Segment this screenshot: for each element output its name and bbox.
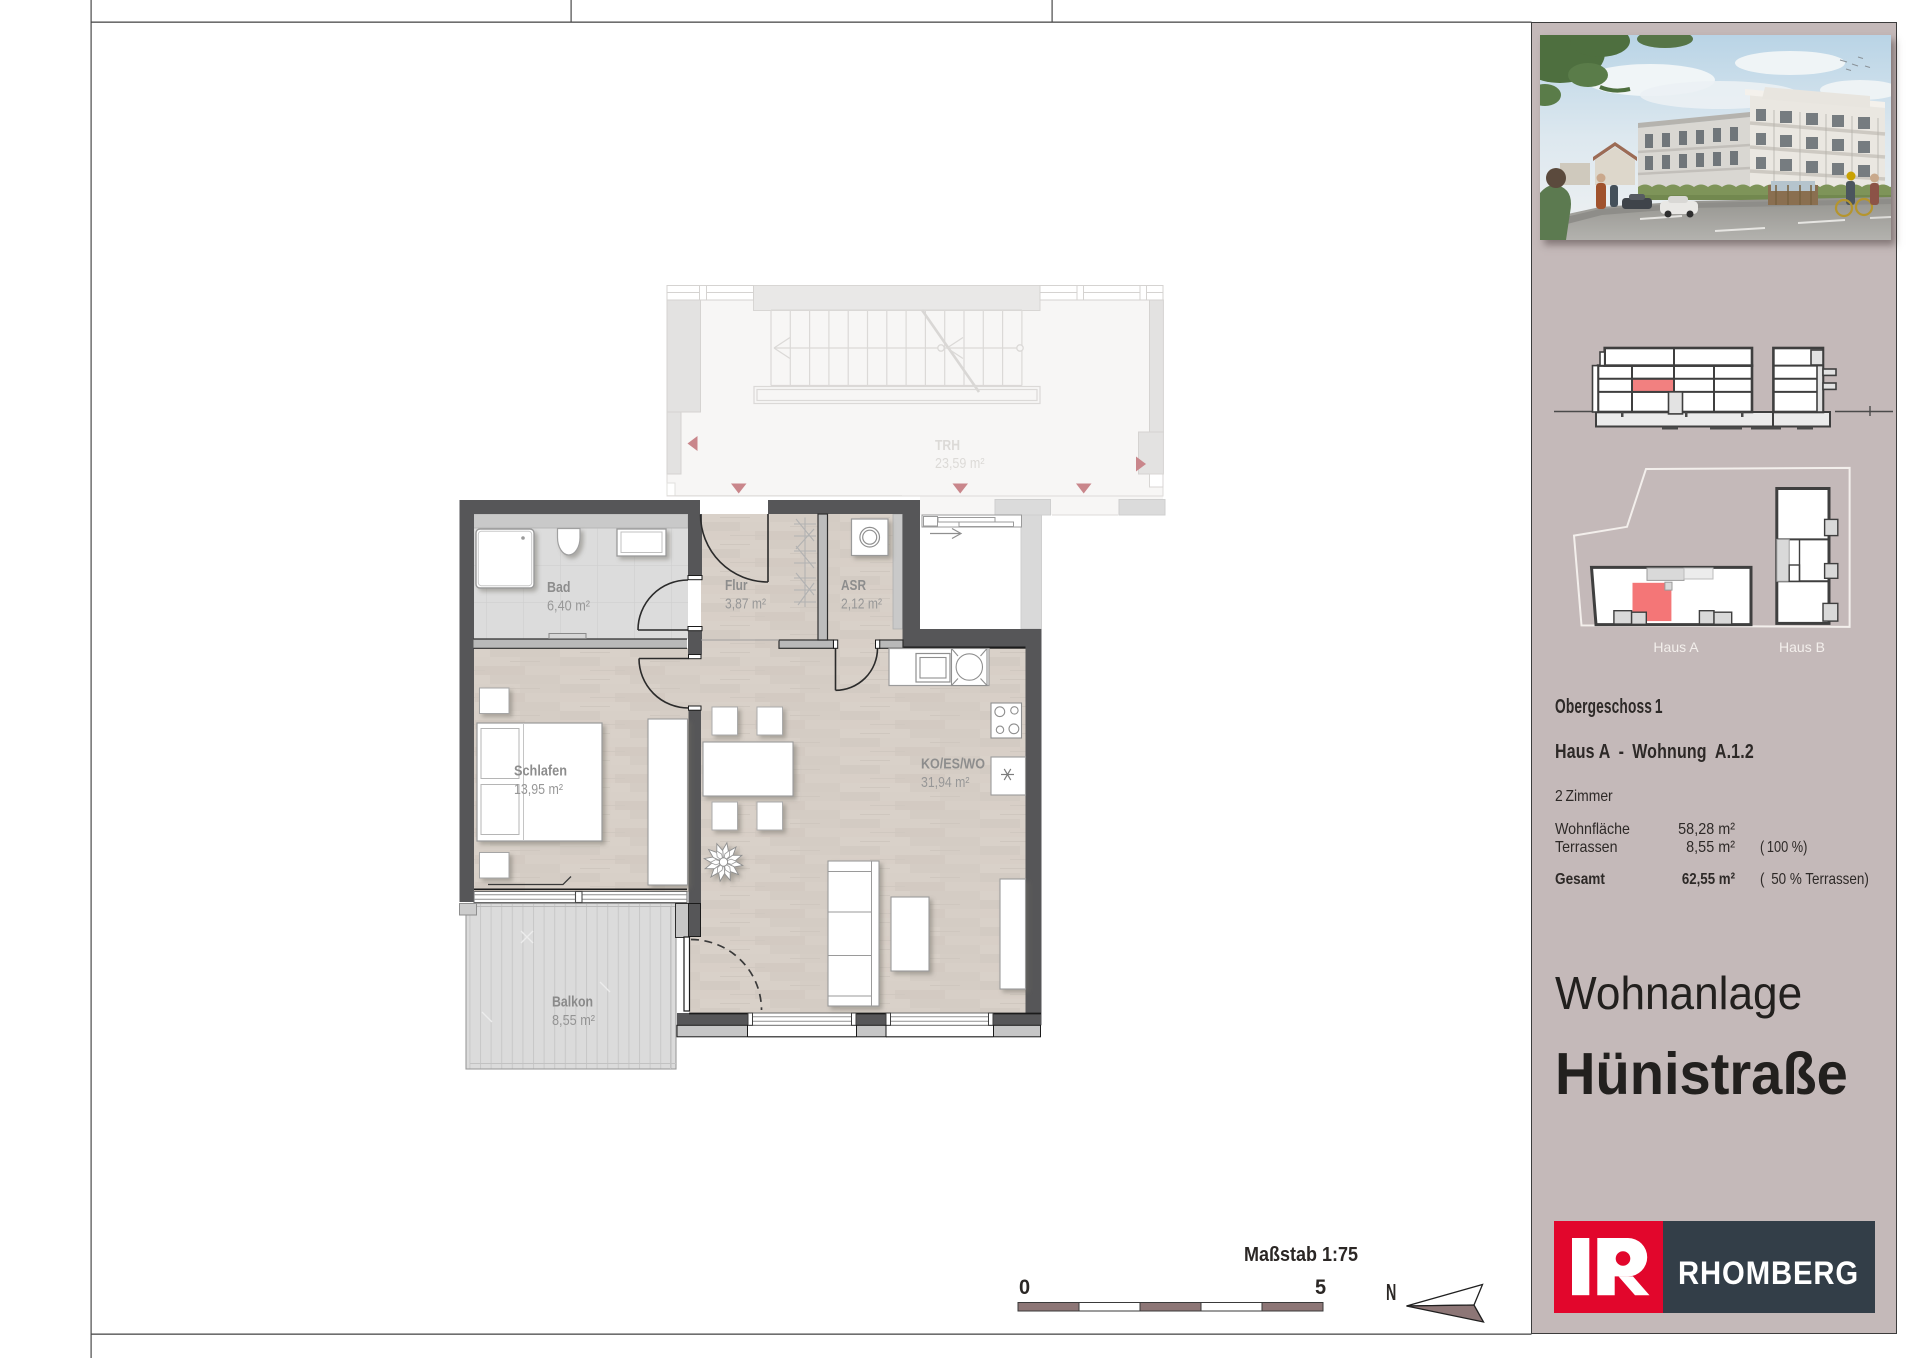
svg-text:31,94 m²: 31,94 m² bbox=[921, 775, 970, 791]
svg-text:13,95 m²: 13,95 m² bbox=[514, 782, 563, 798]
svg-text:Balkon: Balkon bbox=[552, 995, 593, 1011]
svg-text:ASR: ASR bbox=[841, 578, 866, 594]
svg-text:TRH: TRH bbox=[935, 437, 960, 454]
svg-text:2,12 m²: 2,12 m² bbox=[841, 597, 882, 613]
svg-text:Bad: Bad bbox=[547, 580, 571, 596]
svg-text:3,87 m²: 3,87 m² bbox=[725, 597, 766, 613]
svg-text:Haus A: Haus A bbox=[1653, 639, 1699, 655]
svg-text:Flur: Flur bbox=[725, 578, 748, 594]
svg-text:Schlafen: Schlafen bbox=[514, 764, 567, 780]
svg-text:8,55 m²: 8,55 m² bbox=[552, 1013, 595, 1029]
svg-text:KO/ES/WO: KO/ES/WO bbox=[921, 757, 985, 773]
svg-text:23,59 m²: 23,59 m² bbox=[935, 456, 985, 472]
svg-text:6,40 m²: 6,40 m² bbox=[547, 599, 590, 615]
svg-text:Haus B: Haus B bbox=[1779, 639, 1825, 655]
